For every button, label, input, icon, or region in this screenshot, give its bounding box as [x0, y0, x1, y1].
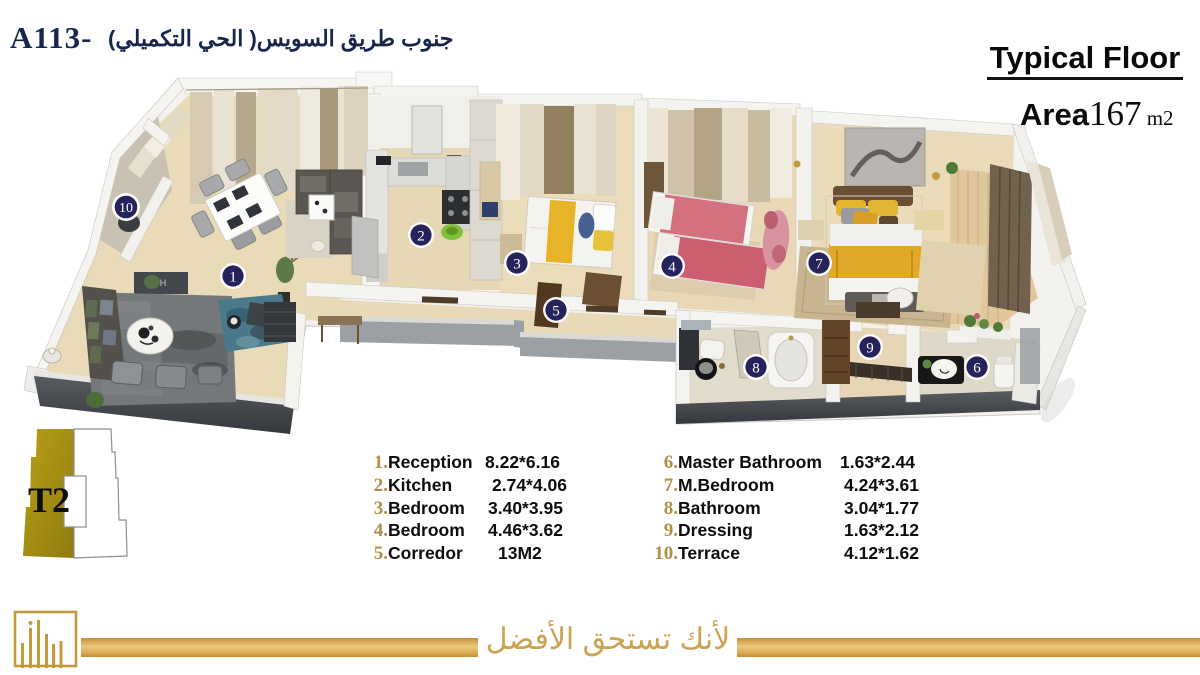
svg-text:4: 4: [668, 259, 676, 275]
svg-text:10: 10: [119, 201, 133, 216]
svg-text:2: 2: [417, 228, 425, 244]
svg-text:8: 8: [752, 360, 760, 376]
svg-text:6: 6: [973, 360, 981, 376]
svg-text:9: 9: [866, 340, 874, 356]
svg-text:T2: T2: [28, 480, 70, 520]
svg-text:5: 5: [552, 303, 560, 319]
svg-text:1: 1: [229, 269, 237, 285]
svg-text:3: 3: [513, 256, 521, 272]
svg-text:7: 7: [815, 256, 823, 272]
svg-text:H: H: [160, 278, 167, 288]
